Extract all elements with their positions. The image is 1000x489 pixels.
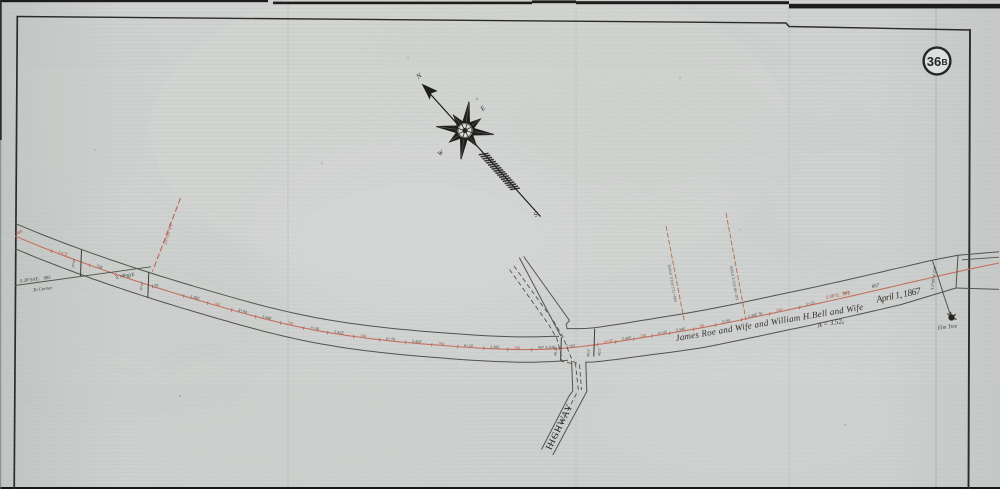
svg-text:5.38E: 5.38E (490, 344, 500, 349)
svg-text:6+78: 6+78 (386, 336, 395, 342)
svg-text:36: 36 (927, 54, 941, 69)
svg-text:744: 744 (438, 341, 445, 346)
svg-text:748: 748 (639, 332, 646, 338)
svg-text:5+62: 5+62 (566, 343, 575, 349)
svg-text:49.5′: 49.5′ (586, 348, 592, 357)
svg-text:748: 748 (360, 333, 367, 339)
svg-text:997 A.50E: 997 A.50E (538, 345, 556, 350)
svg-text:746: 746 (514, 345, 521, 350)
svg-text:5.40E: 5.40E (412, 338, 423, 344)
svg-text:6+20: 6+20 (464, 343, 473, 349)
svg-text:B: B (942, 57, 948, 67)
svg-text:40.5′: 40.5′ (597, 347, 603, 356)
